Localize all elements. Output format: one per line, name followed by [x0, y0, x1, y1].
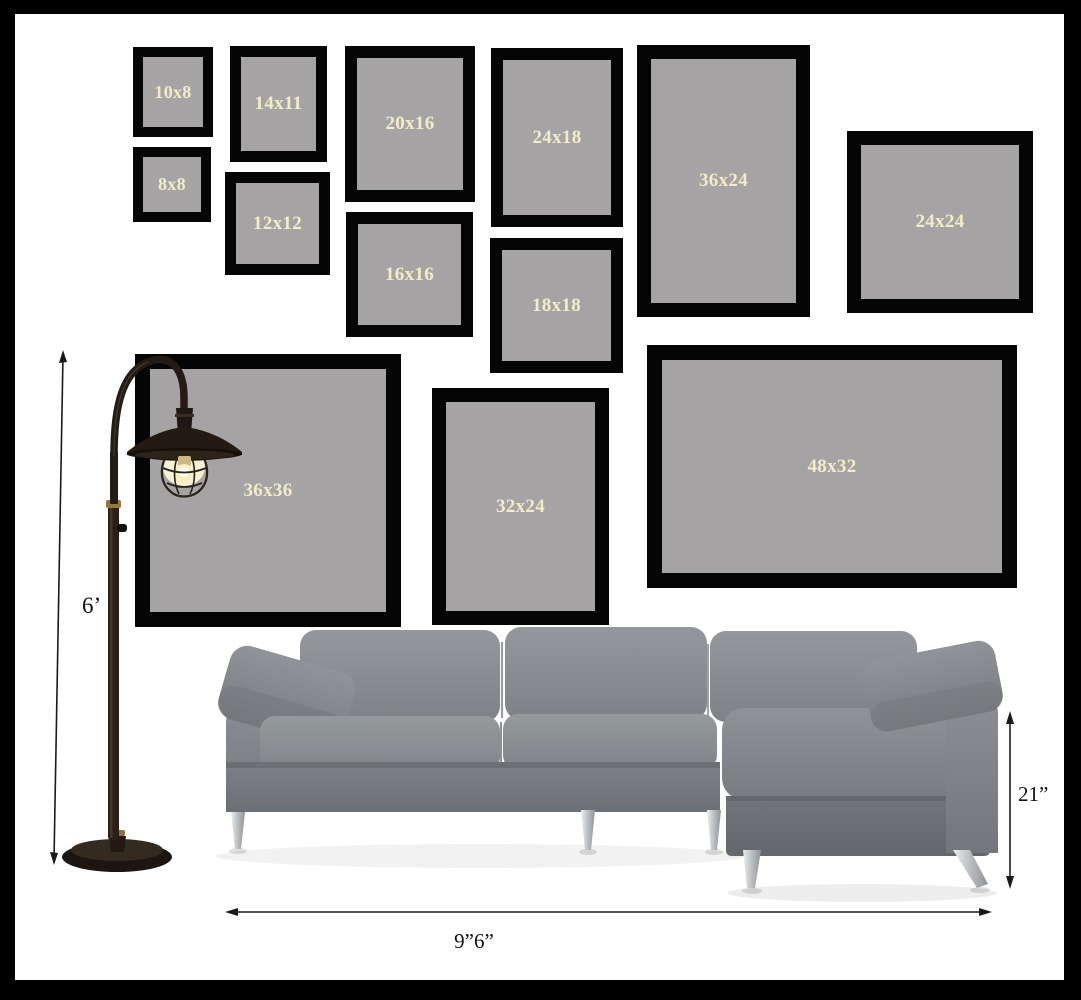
frame-size-comparison-infographic: 10x8 14x11 20x16 24x18 36x24 24x24 8x8 1… — [0, 0, 1081, 1000]
sofa-height-label: 21” — [1018, 782, 1048, 806]
sectional-sofa — [214, 627, 1006, 902]
lamp-height-label: 6’ — [82, 593, 101, 618]
sofa-width-label: 9”6” — [454, 929, 494, 953]
scene-overlay: 6’ 21” 9”6” — [0, 0, 1081, 1000]
